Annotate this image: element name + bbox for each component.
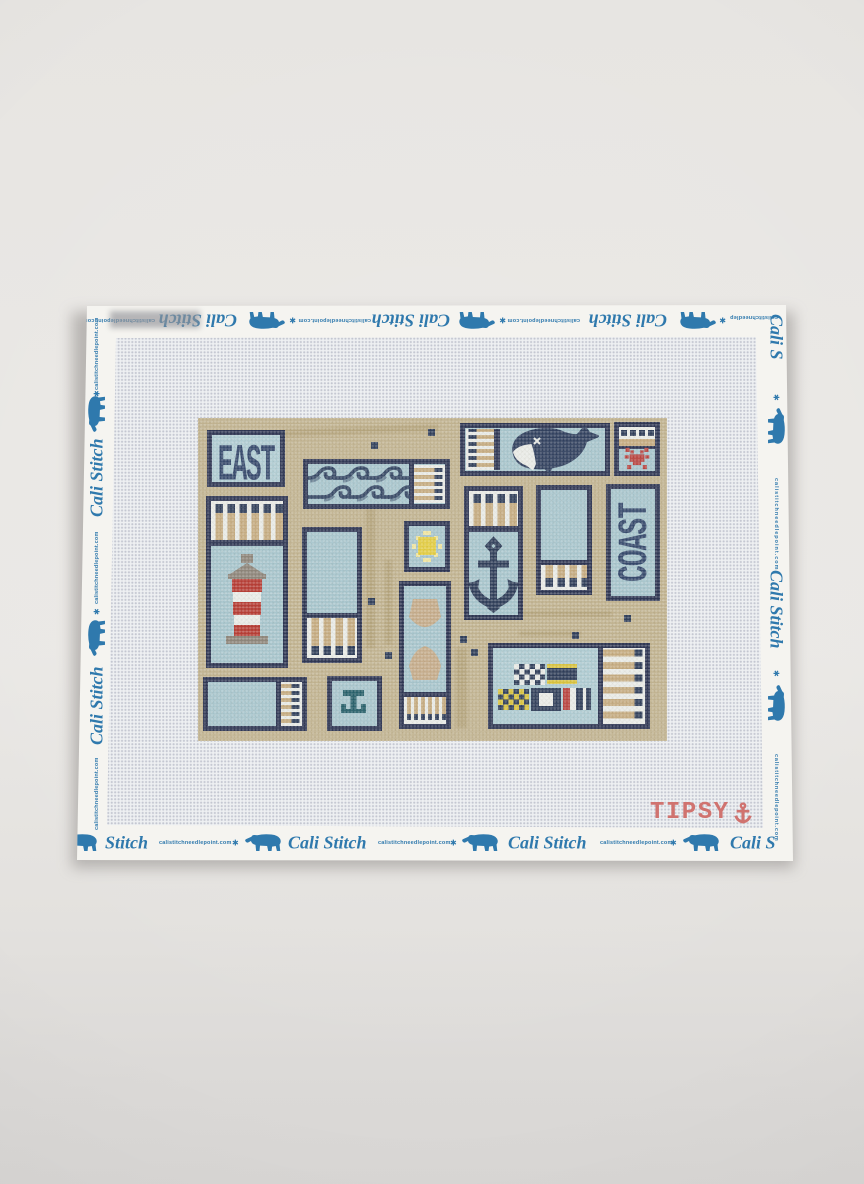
svg-text:COAST: COAST bbox=[612, 502, 654, 582]
svg-text:EAST: EAST bbox=[218, 438, 275, 481]
